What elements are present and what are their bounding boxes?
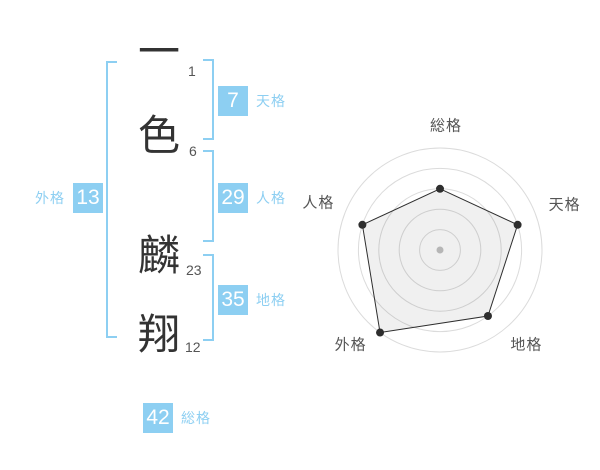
name-stroke-diagnosis-panel: 一 色 麟 翔 1 6 23 12 7 天格 29 人格 35 地格 外格 13… bbox=[0, 0, 600, 470]
radar-data-point bbox=[514, 221, 522, 229]
radar-axis-label: 総格 bbox=[430, 118, 462, 135]
radar-data-point bbox=[358, 221, 366, 229]
radar-data-point bbox=[376, 329, 384, 337]
radar-axis-label: 外格 bbox=[335, 337, 367, 354]
radar-data-point bbox=[436, 185, 444, 193]
radar-axis-label: 地格 bbox=[510, 337, 542, 354]
radar-data-point bbox=[484, 312, 492, 320]
radar-axis-label: 天格 bbox=[549, 196, 581, 213]
radar-axis-label: 人格 bbox=[302, 194, 334, 211]
radar-chart: 総格天格地格外格人格 bbox=[0, 0, 600, 470]
